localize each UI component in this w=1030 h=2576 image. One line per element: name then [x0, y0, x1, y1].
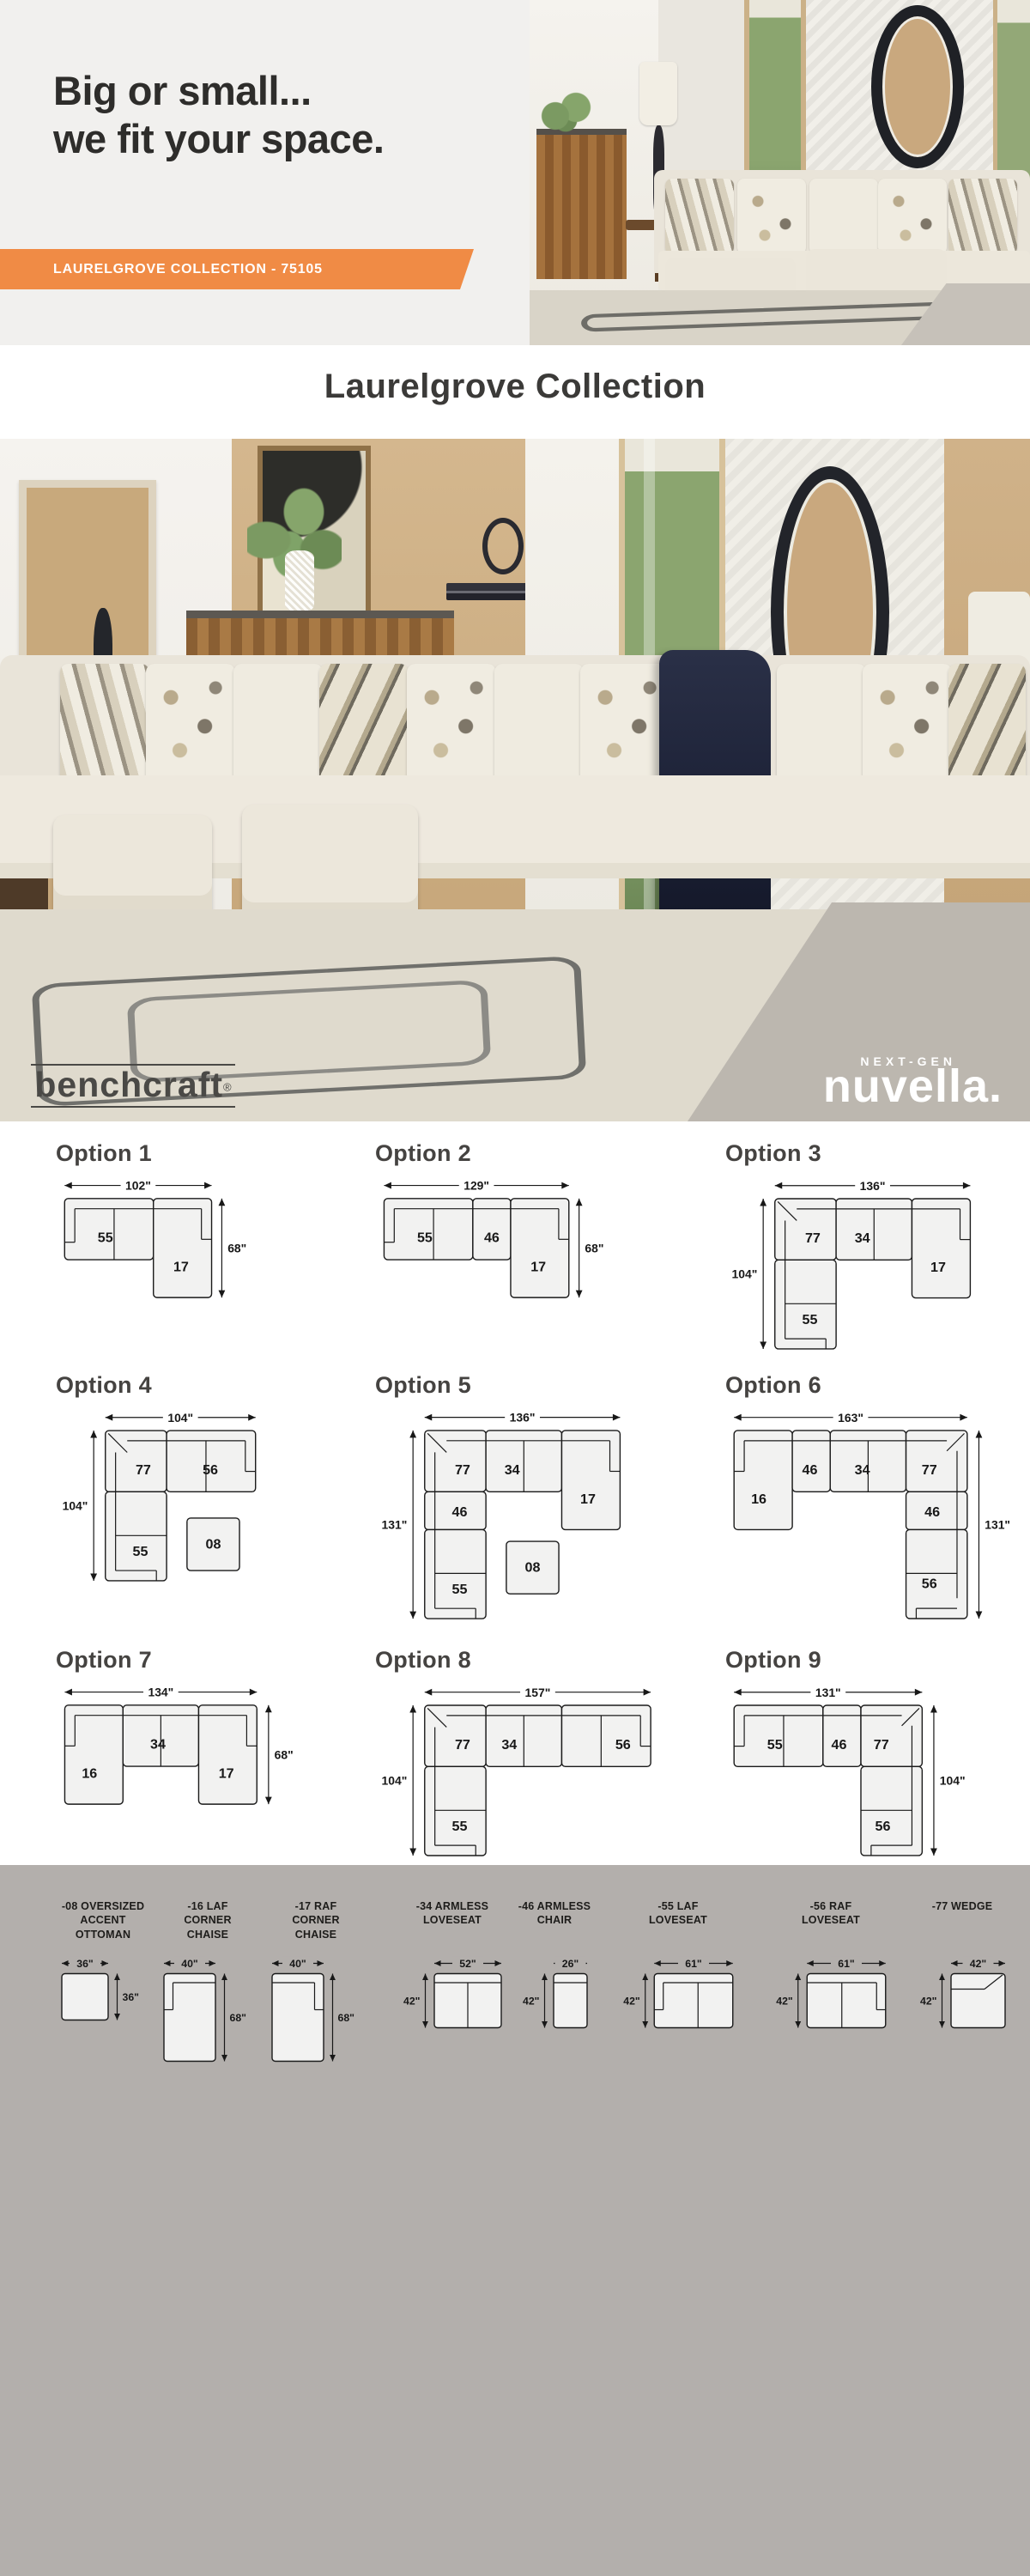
piece-name: -17 RAF CORNER CHAISE: [263, 1899, 369, 1941]
svg-text:46: 46: [924, 1504, 940, 1520]
svg-text:77: 77: [922, 1462, 937, 1478]
svg-text:131": 131": [985, 1518, 1010, 1532]
svg-text:16: 16: [82, 1766, 97, 1782]
headline: Big or small... we fit your space.: [53, 67, 384, 164]
benchcraft-wordmark: benchcraft: [34, 1065, 223, 1104]
svg-text:68": 68": [338, 2012, 355, 2024]
piece-name-line: OTTOMAN: [53, 1928, 153, 1941]
piece-name-line: -55 LAF: [615, 1899, 742, 1913]
option-4-block: Option 4 77565508104"104": [56, 1372, 269, 1591]
collection-banner: LAURELGROVE COLLECTION - 75105: [0, 249, 474, 289]
svg-text:55: 55: [803, 1312, 818, 1327]
svg-text:157": 157": [525, 1686, 551, 1699]
option-3-diagram: 77341755136"104": [725, 1174, 982, 1359]
svg-text:36": 36": [123, 1991, 140, 2003]
svg-text:68": 68": [275, 1748, 294, 1762]
svg-text:68": 68": [227, 1242, 246, 1255]
svg-text:104": 104": [382, 1774, 408, 1788]
piece-name: -34 ARMLESS LOVESEAT: [395, 1899, 510, 1928]
svg-text:42": 42": [403, 1996, 421, 2008]
svg-text:26": 26": [561, 1958, 579, 1970]
svg-text:56: 56: [875, 1819, 891, 1834]
piece-diagram: 61"42": [615, 1954, 742, 2037]
option-2-block: Option 2 554617129"68": [375, 1140, 617, 1308]
piece-name-line: LOVESEAT: [767, 1913, 894, 1927]
piece-name-line: CORNER: [263, 1913, 369, 1927]
pillow: [407, 664, 496, 784]
svg-text:104": 104": [732, 1267, 758, 1281]
options-section: Option 1 5517102"68" Option 2 554617129"…: [0, 1121, 1030, 1865]
svg-text:104": 104": [63, 1499, 88, 1513]
svg-text:17: 17: [219, 1766, 234, 1782]
pillow: [777, 664, 866, 784]
svg-text:17: 17: [580, 1492, 596, 1507]
svg-text:77: 77: [455, 1737, 470, 1753]
option-6-diagram: 164634774656163"131": [725, 1406, 1020, 1629]
svg-text:77: 77: [874, 1737, 889, 1753]
option-4-heading: Option 4: [56, 1372, 269, 1399]
piece-diagram: 52"42": [395, 1954, 510, 2037]
svg-text:42": 42": [920, 1996, 937, 2008]
lamp-shade: [639, 62, 677, 125]
svg-text:34: 34: [150, 1737, 166, 1753]
option-8-heading: Option 8: [375, 1647, 661, 1674]
svg-text:104": 104": [167, 1411, 193, 1425]
option-2-heading: Option 2: [375, 1140, 617, 1167]
svg-text:102": 102": [125, 1179, 151, 1193]
option-4-diagram: 77565508104"104": [56, 1406, 269, 1591]
piece-name: -08 OVERSIZED ACCENT OTTOMAN: [53, 1899, 153, 1941]
header-photo: [530, 0, 1030, 345]
svg-text:55: 55: [133, 1544, 148, 1559]
pillow: [60, 664, 149, 784]
svg-text:56: 56: [203, 1462, 218, 1478]
svg-text:131": 131": [815, 1686, 841, 1699]
svg-text:131": 131": [382, 1518, 408, 1532]
svg-text:34: 34: [505, 1462, 520, 1478]
option-8-block: Option 8 77345655157"104": [375, 1647, 661, 1866]
svg-text:163": 163": [838, 1411, 863, 1425]
svg-text:40": 40": [181, 1958, 198, 1970]
svg-text:136": 136": [860, 1179, 886, 1193]
piece-name-line: -17 RAF: [263, 1899, 369, 1913]
svg-text:17: 17: [930, 1260, 946, 1275]
option-1-heading: Option 1: [56, 1140, 263, 1167]
piece-name-line: CHAISE: [263, 1928, 369, 1941]
svg-text:36": 36": [76, 1958, 94, 1970]
svg-text:77: 77: [455, 1462, 470, 1478]
headline-line-2: we fit your space.: [53, 115, 384, 163]
ring-sculpture: [482, 518, 524, 574]
svg-text:55: 55: [452, 1819, 468, 1834]
svg-text:42": 42": [969, 1958, 986, 1970]
svg-text:136": 136": [510, 1411, 536, 1425]
svg-text:56: 56: [922, 1576, 937, 1591]
svg-text:42": 42": [523, 1996, 540, 2008]
svg-text:34: 34: [855, 1230, 870, 1246]
svg-text:42": 42": [776, 1996, 793, 2008]
hero-photo: benchcraft® NEXT-GEN nuvella.: [0, 439, 1030, 1121]
piece-name: -77 WEDGE: [911, 1899, 1014, 1913]
option-5-heading: Option 5: [375, 1372, 632, 1399]
svg-text:77: 77: [136, 1462, 151, 1478]
option-3-heading: Option 3: [725, 1140, 982, 1167]
svg-text:40": 40": [289, 1958, 306, 1970]
svg-text:46: 46: [484, 1230, 500, 1246]
pillow: [737, 179, 806, 254]
svg-text:68": 68": [585, 1242, 603, 1255]
piece-diagram: 26"42": [513, 1954, 596, 2037]
svg-text:34: 34: [855, 1462, 870, 1478]
wood-cabinet: [536, 129, 627, 279]
option-8-diagram: 77345655157"104": [375, 1680, 661, 1866]
option-7-heading: Option 7: [56, 1647, 312, 1674]
registered-mark: ®: [223, 1081, 232, 1094]
piece-name: -56 RAF LOVESEAT: [767, 1899, 894, 1928]
option-1-block: Option 1 5517102"68": [56, 1140, 263, 1308]
pillow: [948, 664, 1026, 784]
svg-text:08: 08: [205, 1537, 221, 1552]
svg-text:68": 68": [230, 2012, 247, 2024]
svg-text:46: 46: [832, 1737, 847, 1753]
piece-name-line: CHAISE: [154, 1928, 261, 1941]
pillow: [233, 664, 323, 784]
option-7-diagram: 163417134"68": [56, 1680, 312, 1814]
header-section: Big or small... we fit your space. LAURE…: [0, 0, 1030, 345]
pillow: [809, 179, 878, 254]
pillow: [319, 664, 409, 784]
piece-diagram: 36"36": [53, 1954, 153, 2029]
svg-text:08: 08: [525, 1560, 541, 1576]
option-6-block: Option 6 164634774656163"131": [725, 1372, 1020, 1629]
piece-name-line: -08 OVERSIZED: [53, 1899, 153, 1913]
piece-name-line: CHAIR: [513, 1913, 596, 1927]
svg-text:61": 61": [685, 1958, 702, 1970]
piece-diagram: 40"68": [154, 1954, 261, 2070]
svg-text:55: 55: [417, 1230, 433, 1246]
svg-text:46: 46: [452, 1504, 468, 1520]
piece-name-line: -56 RAF: [767, 1899, 894, 1913]
nuvella-logo: NEXT-GEN nuvella.: [823, 1054, 1003, 1109]
pillow: [948, 179, 1017, 254]
pillow: [863, 664, 952, 784]
svg-text:134": 134": [148, 1686, 173, 1699]
svg-text:55: 55: [98, 1230, 113, 1246]
title-band: Laurelgrove Collection: [0, 345, 1030, 439]
svg-text:129": 129": [463, 1179, 489, 1193]
svg-text:42": 42": [623, 1996, 640, 2008]
piece-diagram: 61"42": [767, 1954, 894, 2037]
piece-name-line: LOVESEAT: [395, 1913, 510, 1927]
svg-text:56: 56: [615, 1737, 631, 1753]
svg-text:77: 77: [805, 1230, 821, 1246]
piece-name-line: -46 ARMLESS: [513, 1899, 596, 1913]
piece-name-line: -16 LAF: [154, 1899, 261, 1913]
piece-name: -55 LAF LOVESEAT: [615, 1899, 742, 1928]
plant: [540, 90, 591, 133]
option-5-block: Option 5 773417465508136"131": [375, 1372, 632, 1629]
page-title: Laurelgrove Collection: [0, 345, 1030, 406]
option-3-block: Option 3 77341755136"104": [725, 1140, 982, 1359]
svg-text:55: 55: [767, 1737, 783, 1753]
pillow: [580, 664, 669, 784]
svg-text:52": 52": [459, 1958, 476, 1970]
piece-name-line: CORNER: [154, 1913, 261, 1927]
plant-vase: [285, 550, 314, 612]
option-2-diagram: 554617129"68": [375, 1174, 617, 1308]
svg-text:34: 34: [501, 1737, 517, 1753]
pillow: [146, 664, 235, 784]
pieces-section: -08 OVERSIZED ACCENT OTTOMAN 36"36" -16 …: [0, 1865, 1030, 2576]
piece-name-line: LOVESEAT: [615, 1913, 742, 1927]
piece-name-line: -34 ARMLESS: [395, 1899, 510, 1913]
svg-text:46: 46: [803, 1462, 818, 1478]
svg-text:16: 16: [751, 1492, 766, 1507]
option-9-block: Option 9 55467756131"104": [725, 1647, 982, 1866]
option-7-block: Option 7 163417134"68": [56, 1647, 312, 1814]
ottoman: [53, 815, 212, 925]
option-9-diagram: 55467756131"104": [725, 1680, 982, 1866]
pillow: [494, 664, 584, 784]
svg-text:17: 17: [173, 1260, 189, 1275]
piece-name-line: ACCENT: [53, 1913, 153, 1927]
option-5-diagram: 773417465508136"131": [375, 1406, 632, 1629]
piece-diagram: 42"42": [911, 1954, 1014, 2037]
headline-line-1: Big or small...: [53, 67, 384, 115]
pillow: [878, 179, 947, 254]
svg-text:55: 55: [452, 1582, 468, 1597]
piece-name: -16 LAF CORNER CHAISE: [154, 1899, 261, 1941]
piece-diagram: 40"68": [263, 1954, 369, 2070]
collection-banner-label: LAURELGROVE COLLECTION - 75105: [0, 249, 474, 289]
round-mirror: [871, 5, 964, 168]
option-9-heading: Option 9: [725, 1647, 982, 1674]
benchcraft-logo: benchcraft®: [31, 1064, 235, 1108]
option-6-heading: Option 6: [725, 1372, 1020, 1399]
piece-name: -46 ARMLESS CHAIR: [513, 1899, 596, 1928]
catalog-page: Big or small... we fit your space. LAURE…: [0, 0, 1030, 2576]
option-1-diagram: 5517102"68": [56, 1174, 263, 1308]
svg-text:104": 104": [940, 1774, 966, 1788]
svg-text:17: 17: [530, 1260, 546, 1275]
nuvella-wordmark: nuvella.: [823, 1063, 1003, 1109]
svg-text:61": 61": [838, 1958, 855, 1970]
pillow: [665, 179, 734, 254]
piece-name-line: -77 WEDGE: [911, 1899, 1014, 1913]
